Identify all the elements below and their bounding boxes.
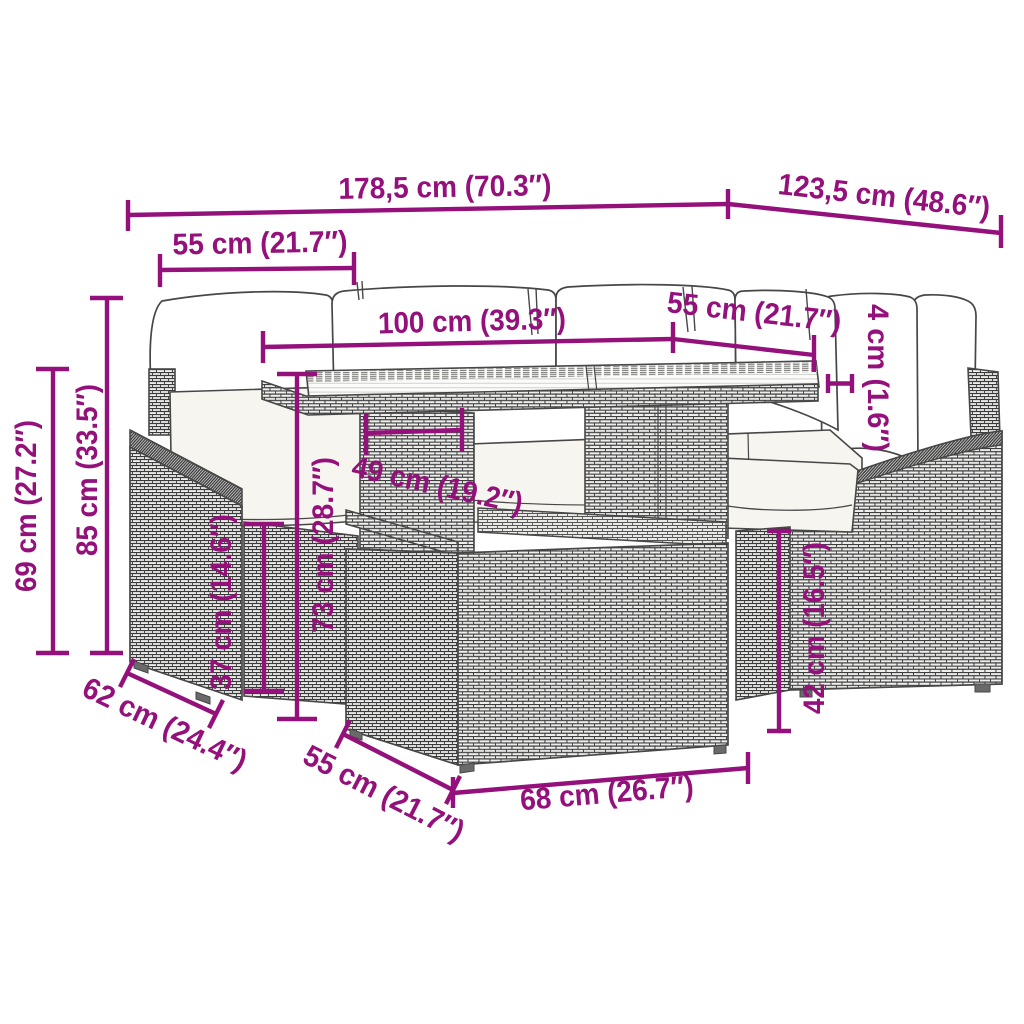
svg-text:73 cm (28.7″): 73 cm (28.7″): [307, 457, 340, 633]
svg-text:42 cm (16.5″): 42 cm (16.5″): [798, 542, 831, 714]
svg-text:85 cm (33.5″): 85 cm (33.5″): [71, 384, 104, 556]
svg-text:4 cm (1.6″): 4 cm (1.6″): [861, 304, 894, 452]
svg-text:37 cm (14.6″): 37 cm (14.6″): [205, 514, 238, 690]
svg-text:178,5 cm (70.3″): 178,5 cm (70.3″): [338, 169, 552, 206]
svg-text:69 cm (27.2″): 69 cm (27.2″): [10, 420, 43, 592]
svg-text:55 cm (21.7″): 55 cm (21.7″): [172, 225, 348, 261]
svg-text:100 cm (39.3″): 100 cm (39.3″): [378, 303, 567, 341]
